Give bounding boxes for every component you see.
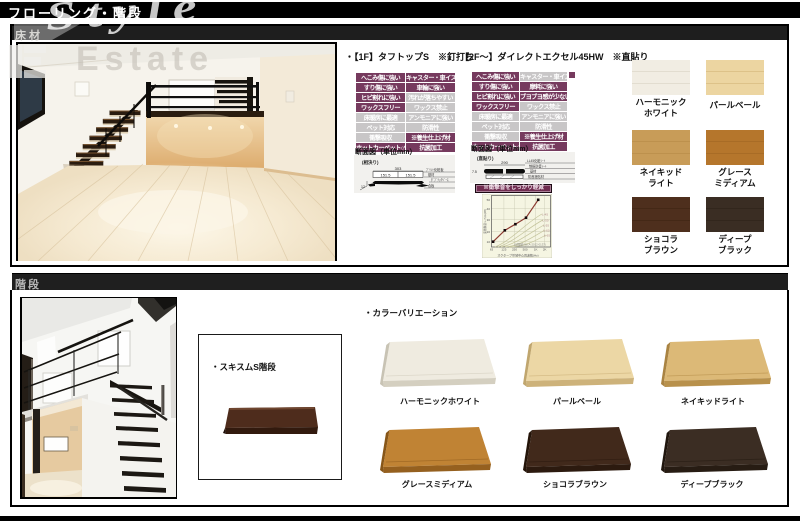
svg-text:250: 250 xyxy=(511,247,516,251)
svg-text:L-50: L-50 xyxy=(542,218,548,222)
svg-text:10: 10 xyxy=(486,240,490,244)
svg-text:LL45化粧ｼｰﾄ: LL45化粧ｼｰﾄ xyxy=(527,158,546,163)
svg-text:(相決り): (相決り) xyxy=(362,159,379,166)
svg-text:125: 125 xyxy=(501,247,506,251)
svg-text:基材: 基材 xyxy=(530,169,537,174)
svg-text:40: 40 xyxy=(486,207,490,211)
svg-text:63: 63 xyxy=(489,247,493,251)
svg-text:2K: 2K xyxy=(542,247,546,251)
svg-text:(直貼り): (直貼り) xyxy=(477,155,494,162)
svg-text:151.5: 151.5 xyxy=(380,173,391,178)
svg-text:50: 50 xyxy=(486,198,490,202)
svg-text:1K: 1K xyxy=(533,247,537,251)
svg-text:ﾀﾞﾌﾞﾃｯｸﾍﾞｰｽ: ﾀﾞﾌﾞﾃｯｸﾍﾞｰｽ xyxy=(431,177,449,182)
svg-text:L-60: L-60 xyxy=(543,228,549,232)
svg-text:20: 20 xyxy=(486,230,490,234)
svg-text:基材: 基材 xyxy=(428,172,435,177)
svg-text:防音捨貼材: 防音捨貼材 xyxy=(528,174,545,179)
svg-text:ﾌﾟﾘﾝﾄ化粧板: ﾌﾟﾘﾝﾄ化粧板 xyxy=(426,167,444,172)
svg-text:303: 303 xyxy=(395,166,402,171)
svg-text:L-45: L-45 xyxy=(542,212,548,216)
svg-text:L-65: L-65 xyxy=(544,233,550,237)
svg-text:(試験値 No.A-2012-0137): (試験値 No.A-2012-0137) xyxy=(514,242,546,246)
svg-text:床衝撃音レベル(dB): 床衝撃音レベル(dB) xyxy=(483,209,487,234)
svg-text:合板: 合板 xyxy=(428,183,435,188)
svg-text:L-55: L-55 xyxy=(543,223,549,227)
svg-text:290: 290 xyxy=(501,160,508,165)
svg-text:151.5: 151.5 xyxy=(405,173,416,178)
svg-text:30: 30 xyxy=(486,218,490,222)
svg-text:制振防音ｼｰﾄ: 制振防音ｼｰﾄ xyxy=(529,164,547,169)
svg-text:オクターブ帯域中心周波数(Hz): オクターブ帯域中心周波数(Hz) xyxy=(497,252,538,257)
svg-text:500: 500 xyxy=(522,247,527,251)
svg-text:7.5: 7.5 xyxy=(472,170,477,174)
